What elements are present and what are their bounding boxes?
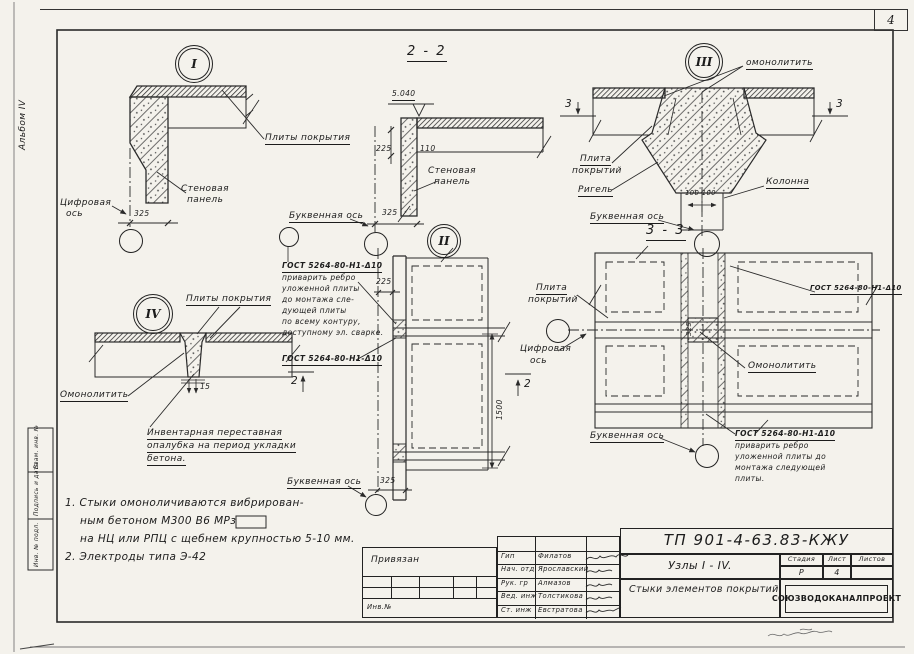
plan-left-dim-1500: 1500 (496, 399, 505, 420)
role-label: Вед. инж (501, 593, 537, 601)
role-name: Евстратова (538, 607, 583, 615)
section33-title: 3 - 3 (646, 224, 686, 241)
node1-axis-label-1: Цифровая (60, 198, 111, 208)
section22-wall-label-1: Стеновая (428, 166, 476, 176)
plan-right-axisnum-label-2: ось (530, 356, 547, 366)
stamp-podpis-data: Подпись и дата (34, 462, 41, 516)
node4-formwork-line1: Инвентарная переставная (147, 428, 282, 440)
subject-line2: Стыки элементов покрытий (629, 585, 779, 596)
persons-table: Гип Филатов Нач. отд Ярославский Рук. гр… (497, 536, 620, 618)
subject-line1: Узлы I - IV. (668, 560, 732, 573)
blueprint-sheet: 4 Альбом IV Взам. инв. № Подпись и дата … (0, 0, 914, 654)
node1-wall-label-1: Стеновая (181, 184, 229, 194)
plan-right-dim-325: 325 (686, 322, 694, 336)
note-line-1: 1. Стыки омоноличиваются вибрирован- (65, 497, 304, 509)
node3-girder-label: Ригель (578, 185, 613, 197)
plan-left-gost-title: ГОСТ 5264-80-Н1-Δ10 (282, 262, 382, 273)
plan-right-drawing (558, 246, 880, 452)
organization-name: СОЮЗВОДОКАНАЛПРОЕКТ (772, 594, 901, 603)
plan-left-cut-mark-right: 2 (524, 378, 531, 390)
node1-axis-circle (119, 229, 143, 253)
titleblock-doc-cell: ТП 901-4-63.83-КЖУ (620, 528, 893, 554)
role-name: Филатов (538, 553, 572, 561)
plan-left-cut-mark-left: 2 (291, 375, 298, 387)
node4-formwork-line3: бетона. (147, 454, 186, 466)
page-number: 4 (887, 13, 895, 27)
plan-left-dim-225: 225 (376, 278, 392, 287)
plan-right-monolith-label: Омонолитить (748, 361, 816, 373)
privyazan-label: Привязан (371, 555, 419, 565)
stage-value: Р (799, 568, 804, 577)
plan-right-slab-label-1: Плита (536, 283, 567, 295)
sheets-label: Листов (859, 556, 886, 563)
plan-left-axis-label: Буквенная ось (287, 477, 361, 489)
weld-note-line: уложенной плиты (282, 285, 360, 294)
sheets-value-cell (851, 566, 893, 579)
plan-right-axis-circle (695, 444, 719, 468)
plan-right-axis-letter-label: Буквенная ось (590, 431, 664, 443)
note-line-2: ным бетоном М300 В6 МРз (80, 515, 236, 527)
node3-cut-mark-left: 3 (565, 98, 572, 110)
gost-note-line: приварить ребро (735, 442, 809, 451)
node4-formwork-line2: опалубка на период укладки (147, 441, 296, 453)
sheet-label-cell: Лист (823, 554, 851, 566)
sheets-label-cell: Листов (851, 554, 893, 566)
node3-dim-100: 100 100 (685, 190, 716, 198)
node4-marker: IV (136, 297, 170, 331)
node3-cut-mark-right: 3 (836, 98, 843, 110)
section22-title: 2 - 2 (407, 45, 447, 62)
node3-slab-label-1: Плита (580, 154, 611, 166)
titleblock-subject2-cell: Стыки элементов покрытий (620, 579, 780, 618)
weld-note-line: дующей плиты (282, 307, 347, 316)
plan-right-axisnum-label-1: Цифровая (520, 344, 571, 354)
sheet-value: 4 (834, 568, 840, 577)
plan-right-gost-top: ГОСТ 5264-80-Н1-Δ10 (810, 285, 902, 295)
node1-slab-label: Плиты покрытия (265, 133, 350, 145)
weld-note-line: по всему контуру, (282, 318, 361, 327)
organization-box: СОЮЗВОДОКАНАЛПРОЕКТ (785, 585, 888, 613)
section22-wall-label-2: панель (434, 177, 470, 187)
role-name: Ярославский (538, 566, 589, 574)
inv-no-label: Инв.№ (367, 604, 392, 612)
note-line-4: 2. Электроды типа Э-42 (65, 551, 206, 563)
concrete-mark-box (236, 516, 266, 528)
role-label: Нач. отд (501, 566, 535, 574)
role-name: Алмазов (538, 580, 571, 588)
handwritten-note-squiggle (768, 629, 832, 636)
plan-left-axis-circle (365, 494, 387, 516)
section22-dim-225: 225 (376, 145, 392, 154)
attachment-region: Привязан Инв.№ (362, 547, 497, 618)
plan-right-left-axis-circle (546, 319, 570, 343)
role-label: Рук. гр (501, 580, 528, 588)
node2-numeral: II (438, 234, 449, 248)
plan-right-slab-label-2: покрытий (528, 295, 578, 305)
node3-numeral: III (696, 55, 713, 69)
node1-numeral: I (191, 57, 197, 71)
stage-label-cell: Стадия (780, 554, 823, 566)
page-number-box: 4 (874, 9, 908, 31)
node1-dim-325: 325 (134, 210, 150, 219)
note-line-3: на НЦ или РПЦ с щебнем крупностью 5-10 м… (80, 533, 355, 545)
node3-slab-label-2: покрытий (572, 166, 622, 176)
node3-monolith-label: омонолитить (746, 58, 813, 70)
node4-drawing (89, 307, 300, 427)
plan-right-gost-note-title: ГОСТ 5264-80-Н1-Δ10 (735, 430, 835, 441)
weld-note-line: до монтажа сле- (282, 296, 354, 305)
role-label: Ст. инж (501, 607, 532, 615)
node1-wall-label-2: панель (187, 195, 223, 205)
plan-left-gost-title-2: ГОСТ 5264-80-Н1-Δ10 (282, 355, 382, 366)
gost-note-line: монтажа следующей (735, 464, 826, 473)
section22-dim-110: 110 (420, 145, 436, 154)
album-label: Альбом IV (18, 100, 28, 150)
stage-value-cell: Р (780, 566, 823, 579)
node4-monolith-label: Омонолитить (60, 390, 128, 402)
node3-axis-circle (694, 231, 720, 257)
node3-marker: III (688, 46, 720, 78)
gost-note-line: уложенной плиты до (735, 453, 826, 462)
weld-note-line: доступному эл. сварке. (282, 329, 384, 338)
role-label: Гип (501, 553, 515, 561)
section22-dim-325: 325 (382, 209, 398, 218)
titleblock-subject1-cell: Узлы I - IV. (620, 554, 780, 579)
node4-dim-15: 15 (200, 383, 210, 392)
stamp-inv-podl: Инв. № подл. (34, 522, 41, 567)
plan-left-top-axis-circle (279, 227, 299, 247)
organization-cell: СОЮЗВОДОКАНАЛПРОЕКТ (780, 579, 893, 618)
sheet-label: Лист (828, 556, 846, 563)
gost-note-line: плиты. (735, 475, 765, 484)
plan-left-dim-325: 325 (380, 477, 396, 486)
role-name: Толстикова (538, 593, 583, 601)
stage-label: Стадия (788, 556, 815, 563)
weld-note-line: приварить ребро (282, 274, 356, 283)
node1-drawing (112, 86, 264, 227)
section22-axis-label: Буквенная ось (289, 211, 363, 223)
node4-numeral: IV (146, 307, 161, 321)
section22-elevation: 5.040 (392, 90, 415, 101)
node1-axis-label-2: ось (66, 209, 83, 219)
doc-number: ТП 901-4-63.83-КЖУ (664, 532, 850, 549)
node2-marker: II (430, 227, 458, 255)
node4-slabs-label: Плиты покрытия (186, 294, 271, 306)
node1-marker: I (178, 48, 210, 80)
section22-axis-circle (364, 232, 388, 256)
node3-column-label: Колонна (766, 177, 809, 189)
node3-drawing (560, 66, 848, 236)
sheet-value-cell: 4 (823, 566, 851, 579)
